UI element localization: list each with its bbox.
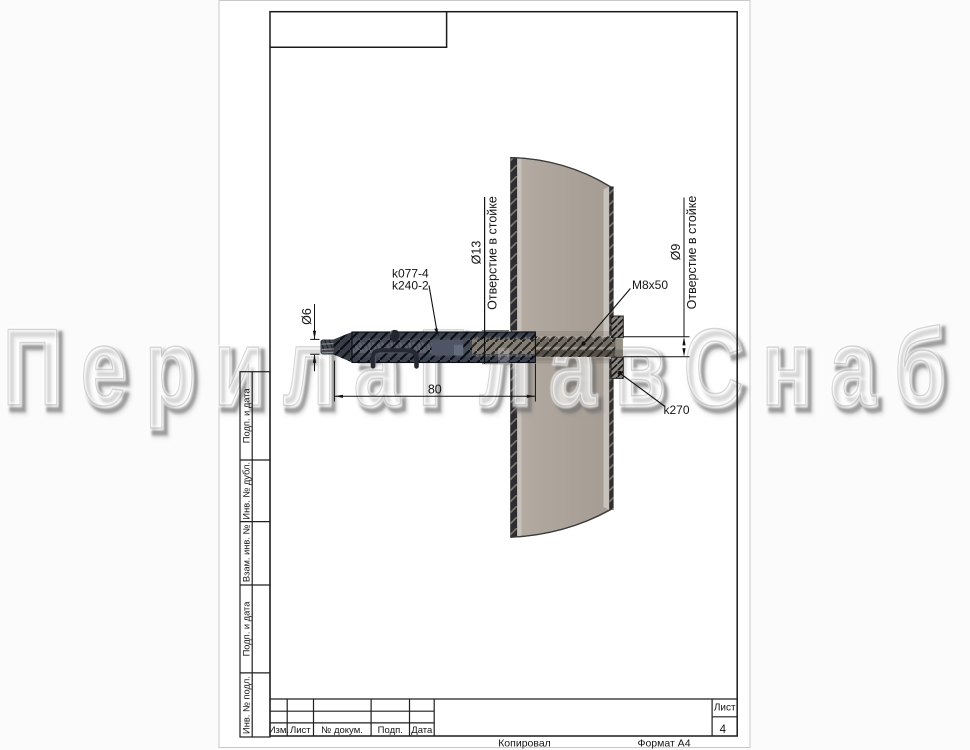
svg-text:Дата: Дата bbox=[411, 725, 433, 736]
svg-text:Отверстие в стойке: Отверстие в стойке bbox=[485, 196, 499, 310]
svg-text:М8х50: М8х50 bbox=[632, 278, 668, 292]
svg-text:Ø6: Ø6 bbox=[300, 308, 314, 325]
svg-text:Формат А4: Формат А4 bbox=[637, 738, 690, 750]
svg-text:Взам. инв. №: Взам. инв. № bbox=[242, 524, 252, 582]
svg-text:Подп. и дата: Подп. и дата bbox=[242, 388, 252, 444]
svg-text:k270: k270 bbox=[664, 403, 690, 417]
svg-text:80: 80 bbox=[428, 382, 442, 396]
svg-text:Лист: Лист bbox=[290, 725, 311, 736]
svg-text:Изм.: Изм. bbox=[269, 725, 289, 736]
svg-text:Копировал: Копировал bbox=[498, 738, 551, 750]
svg-text:Инв. № подл.: Инв. № подл. bbox=[242, 676, 252, 734]
svg-text:k240-2: k240-2 bbox=[392, 278, 429, 292]
svg-text:Ø13: Ø13 bbox=[469, 241, 483, 265]
svg-text:Подп.: Подп. bbox=[378, 725, 403, 736]
svg-text:Подп. и дата: Подп. и дата bbox=[242, 601, 252, 657]
svg-text:№ докум.: № докум. bbox=[321, 725, 363, 736]
svg-text:Инв. № дубл.: Инв. № дубл. bbox=[242, 462, 252, 520]
svg-text:4: 4 bbox=[720, 724, 727, 736]
svg-text:Ø9: Ø9 bbox=[669, 244, 683, 261]
svg-text:Отверстие в стойке: Отверстие в стойке bbox=[685, 196, 699, 310]
svg-text:Лист: Лист bbox=[714, 703, 736, 714]
